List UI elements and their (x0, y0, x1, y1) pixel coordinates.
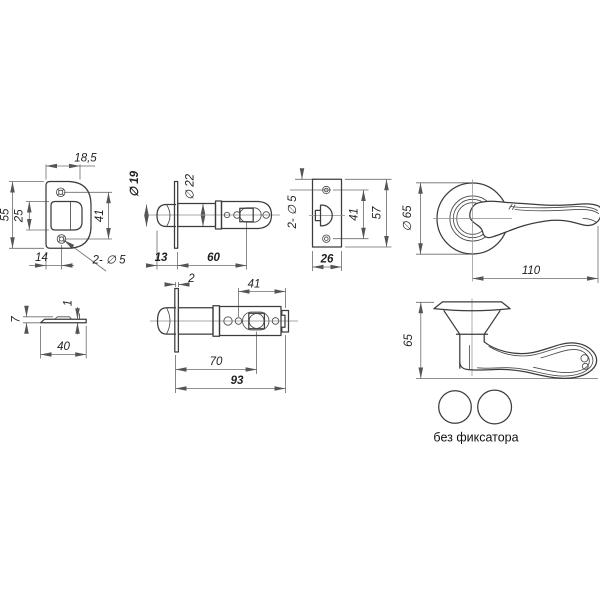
dim-edge-thickness: 1 (63, 300, 75, 306)
dim-bolt-length: 13 (155, 252, 168, 264)
latch-bottom-part (158, 289, 289, 353)
dim-edge-height: 7 (11, 316, 23, 323)
dim-handle-side-height: 65 (403, 334, 415, 347)
strike-plate-view: 2- ∅ 5 41 57 26 (287, 169, 392, 272)
door-handle-technical-drawing: 18,5 55 25 41 14 2- ∅ 5 (0, 0, 600, 600)
faceplate-edge-dimensions (23, 307, 86, 359)
dim-total-length: 93 (231, 375, 244, 387)
dim-lever-length: 110 (522, 265, 541, 277)
dim-edge-width: 40 (57, 341, 70, 353)
latch-bottom-dimensions (166, 282, 286, 393)
faceplate-front-view: 18,5 55 25 41 14 2- ∅ 5 (0, 153, 126, 272)
dim-faceplate-opening-height: 25 (14, 209, 26, 223)
faceplate-edge-view: 7 1 40 (11, 300, 87, 359)
dim-strike-width: 26 (320, 253, 334, 265)
dim-faceplate-bottom-width: 14 (35, 252, 48, 264)
handle-front-part (433, 180, 600, 282)
latch-top-view: ∅ 19 ∅ 22 13 60 (129, 170, 280, 269)
latch-bolt (157, 205, 176, 227)
dim-rose-diameter: ∅ 65 (402, 205, 414, 232)
handle-side-view: 65 (403, 299, 598, 379)
strike-screw-hole-bottom (323, 235, 330, 242)
screw-hole-top (56, 188, 65, 197)
lever-side (460, 342, 597, 379)
dim-bolt-diameter: ∅ 19 (129, 170, 141, 197)
latch-bottom-view: 2 41 70 93 (150, 273, 298, 393)
dim-strike-holes-note: 2- ∅ 5 (287, 195, 299, 230)
variant-circle-left (439, 391, 472, 424)
dim-strike-height: 57 (372, 206, 384, 219)
dim-backset: 70 (210, 356, 223, 368)
dim-strike-hole-spacing: 41 (349, 208, 361, 221)
variant-circle-right (478, 390, 512, 424)
dim-faceplate-thickness: 2 (187, 273, 195, 285)
handle-front-view: ∅ 65 110 (402, 180, 600, 284)
handle-side-dimensions (416, 302, 598, 378)
dim-barrel-length: 60 (207, 252, 220, 264)
faceplate-edge-part (41, 314, 87, 323)
variant-indicator: без фиксатора (433, 390, 518, 444)
strike-plate-part (309, 179, 345, 247)
dim-faceplate-top-width: 18,5 (74, 153, 97, 165)
dim-faceplate-hole-spacing: 41 (94, 209, 106, 222)
faceplate-front-part (46, 182, 91, 249)
technical-drawing-page: 18,5 55 25 41 14 2- ∅ 5 (0, 0, 600, 600)
dim-faceplate-holes-note: 2- ∅ 5 (91, 255, 126, 267)
variant-caption: без фиксатора (433, 431, 518, 445)
dim-barrel-diameter: ∅ 22 (185, 173, 197, 200)
dim-end-section: 41 (248, 279, 261, 291)
handle-side-part (434, 299, 597, 379)
dim-faceplate-height: 55 (0, 208, 12, 221)
scroll-detail-circle-1 (581, 355, 588, 362)
